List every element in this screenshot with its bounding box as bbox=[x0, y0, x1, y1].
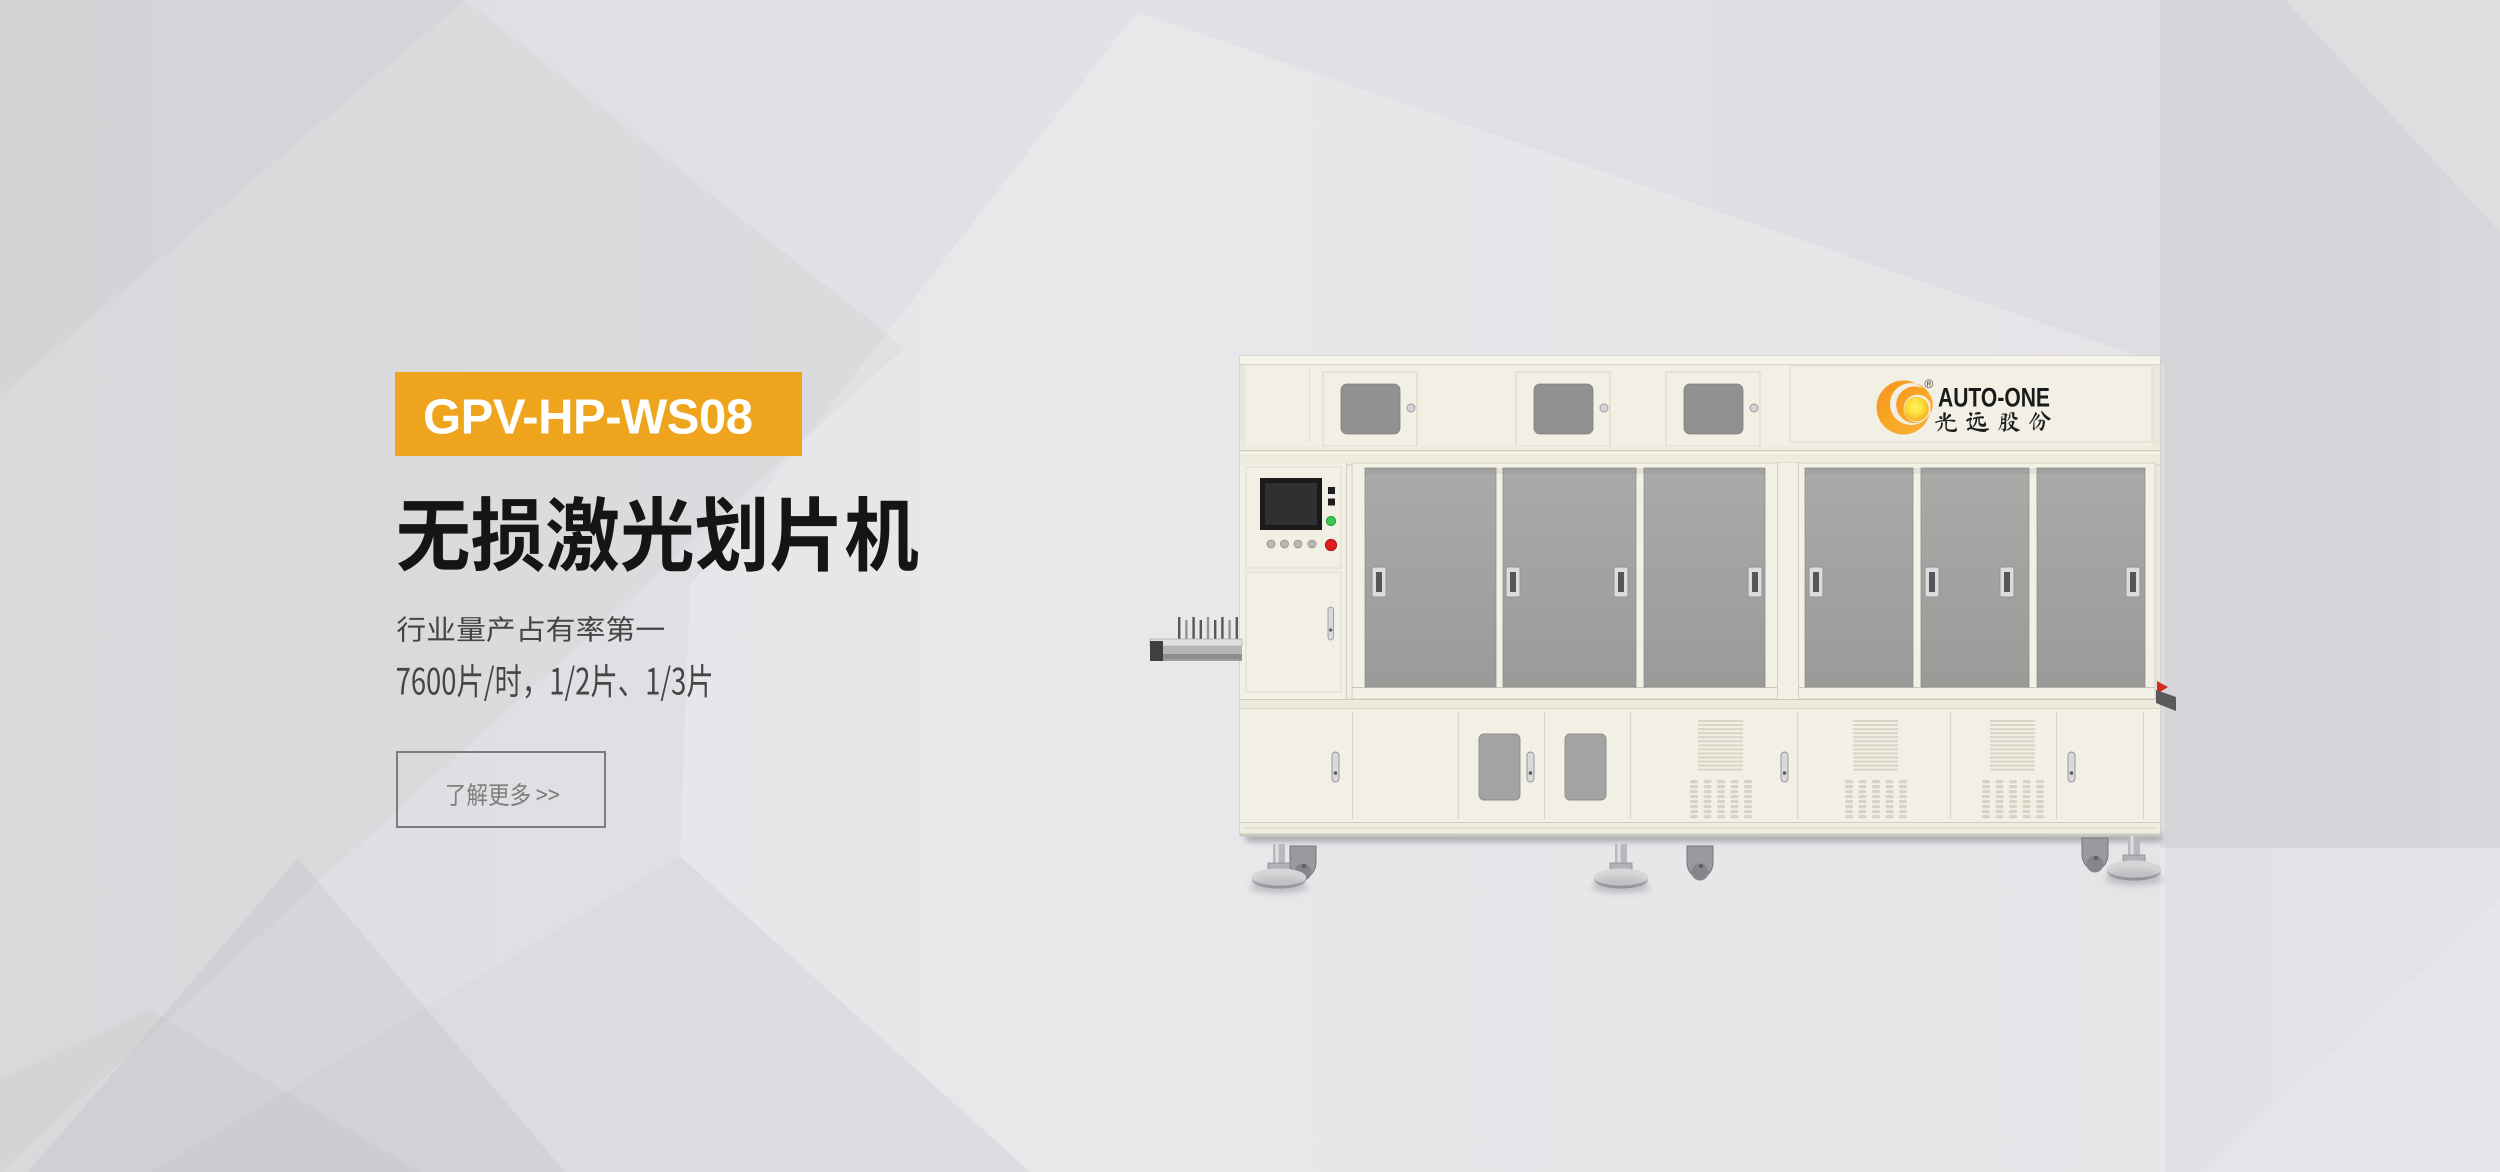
svg-text:AUTO-ONE: AUTO-ONE bbox=[1938, 383, 2050, 413]
svg-text:GPV-HP-WS08: GPV-HP-WS08 bbox=[423, 391, 753, 445]
svg-text:®: ® bbox=[1925, 377, 1934, 391]
